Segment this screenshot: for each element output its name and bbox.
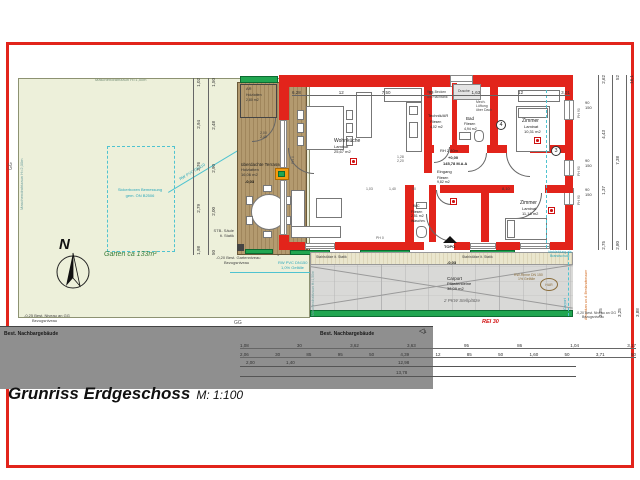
dim-810: 8,10 [502,187,510,192]
garden-label: Garten ca 133m² [104,251,157,258]
ar-label-area: 2,80 m2 [246,98,259,102]
dim-bottom-d: 13,78 [396,370,407,375]
ar-label-name: AR [246,87,252,92]
entrance-marker-icon [443,236,457,243]
carport-fence-note: Maschendrahtzaun H=1,50m [311,268,315,316]
dim-chain-right-c: 16,1 [626,75,636,250]
carport-spaces: 2 PKW Stellplätze [444,298,480,303]
window-size-tag2: 150 [585,193,592,198]
terrace-green-strip-bottom [245,249,273,254]
stb-column [237,244,244,251]
gutter-note-2: 1% Gefälle [518,277,535,281]
dim-chain-left-b: 1,502,482,902,0050 [208,78,218,255]
smoke-detector-icon [450,198,457,205]
door-size-h: 2,40 [260,135,267,139]
room-label-eingang: Eingang [437,170,452,175]
wall [550,242,573,250]
carport-dashed-edge [568,252,569,316]
ph90-tag: PH 90 [577,102,581,118]
wall [287,242,305,250]
carport-column-note: Stahlstütze lt. Statik [462,255,493,259]
north-letter: N [59,236,71,253]
terrace-chair [246,196,253,205]
north-arrow: N [50,234,96,299]
carport-cyan-note-2: Brandschutz [550,254,569,258]
chair [346,110,353,120]
eingang-rh: RH 2,80m [440,149,458,154]
coffee-table [316,198,342,218]
garden-level-note-2: Bezugsniveau [32,319,57,324]
window [564,100,574,120]
wall [424,145,434,153]
room-label-wc: WC [413,204,420,209]
dim-row-bottom-b: 2,06308595504,391285501,60503,7150 [240,350,636,358]
gg-left-label: GG [8,150,14,170]
carport-level: -0,03 [447,261,456,266]
dim-row-top: 6,28127,50921,63123,01 [292,87,570,96]
carport-label-area: 38,09 m2 [447,287,464,292]
carport-green-strip [310,310,573,317]
smoke-detector-icon [350,158,357,165]
room-area: 2,51 m2 [411,214,424,218]
eingang-dim-row: 1,031,4050 [366,187,416,191]
marker-circle-4: 4 [496,120,506,130]
wc-waschm-label: Waschm. [411,219,425,223]
neighbor-level-2: Bezugsniveau [582,315,604,319]
opening-tag-h: 2,20 [397,159,404,163]
window [305,243,335,249]
kitchen-island [356,92,372,138]
pillow [507,220,515,238]
glazing [280,120,287,168]
bad-vent-3: über Dach [476,108,492,112]
wall [496,242,520,250]
room-area: 25,67 m2 [334,150,351,155]
terrace-label-area: 16,06 m2 [241,173,258,178]
topo-label: TOPO [444,245,455,250]
terrace-green-strip-top [240,76,278,83]
road-marker-icon: ◁1 [419,327,427,335]
room-area: 10,31 m2 [524,130,541,135]
drawing-title: Grunriss Erdgeschoss M: 1:100 [8,384,243,404]
sofa [291,226,341,238]
wall [279,235,289,250]
dim-chain-right-a: 2,624,431,372,75 [598,75,608,250]
wall [487,145,507,153]
dim-chain-right-b: 527,382,80 [612,75,622,250]
dim-bottom-c3: 12,98 [398,360,409,365]
room-finish: Fliesen [430,120,441,124]
garden-ref-level-2: Bezugsniveau [224,261,249,266]
road-label: Best. Nachbargebäude [320,331,374,337]
room-area: 11,18 m2 [522,212,538,217]
wall [473,75,573,87]
eingang-altitude: 145,78 M.ü.A [443,162,467,167]
smoke-detector-icon [548,207,555,214]
room-area: 9,82 m2 [437,180,450,184]
room-finish: Fliesen [464,122,475,126]
chair [297,123,304,133]
dim-row-bottom-a: 1,08303,623,6395861,043,17 [240,341,636,349]
drain-label-2: 1,0% Gefälle [281,266,304,271]
wall [565,120,573,160]
carport-top-strip [310,252,573,265]
ph0-tag: PH 0 [376,236,384,240]
dim-bottom-c2: 1,40 [286,360,295,365]
ph90-tag: PH 90 [577,160,581,176]
terrace-chair [263,231,272,238]
carport-column-note: Stahlstütze lt. Statik [316,255,347,259]
chair [297,110,304,120]
sicker-box-outline [107,146,175,252]
road-marker-number: 1 [424,329,426,334]
room-label-bad: Bad [466,116,474,121]
washbasin [459,132,471,140]
room-area: 4,02 m2 [430,125,443,129]
marker-circle-3: 3 [551,146,561,156]
title-scale: M: 1:100 [196,388,243,402]
dim-line [240,369,576,377]
toilet [416,226,427,238]
wall [279,87,289,120]
smoke-detector-icon [534,137,541,144]
wall [335,242,424,250]
room-label-technik: Technik/AR [428,114,448,119]
dim-bottom-c1: 2,00 [246,360,255,365]
window-size-tag2: 150 [585,106,592,111]
chair [346,123,353,133]
carport-side-label: Carport [563,282,567,310]
column-green [278,171,285,177]
wall [545,185,573,193]
wall [424,153,432,173]
ar-label-finish: Holzlatten [246,93,262,97]
dim-chain-carport: 3,253,253,88 [598,255,640,317]
road-label: Best. Nachbargebäude [4,331,58,337]
dim-chain-left-a: 1,022,943,762,791,98 [193,78,203,255]
terrace-chair [263,185,272,192]
room-area: 4,94 m2 [464,127,477,131]
floor-plan-page: Maschendrahtzaun H=1,50m Maschendrahtzau… [0,0,640,480]
roof-overhang-line [546,90,547,248]
toilet [474,130,484,142]
window [564,160,574,176]
fence-left-label: Maschendrahtzaun H=2,00m [20,140,25,210]
wall [454,242,470,250]
fence-top-label: Maschendrahtzaun H=1,50m [95,78,146,83]
glazing [280,180,287,235]
window [470,243,496,249]
sicker-note-2: gem. ÖN B2506 [108,194,172,199]
ph0-tag: PH 0 [291,148,295,164]
terrace-level: -0,03 [245,180,254,185]
kitchen-sink [409,106,418,115]
window-size-tag2: 150 [585,164,592,169]
wall [481,193,489,242]
har-marker: HAR [540,278,558,291]
kitchen-stove [409,122,418,138]
terrace-chair [246,216,253,225]
rei-label: REI 30 [482,319,499,326]
ph90-tag: PH 90 [577,189,581,205]
chair [297,136,304,146]
title-main: Grunriss Erdgeschoss [8,384,190,404]
pillow [518,108,548,118]
